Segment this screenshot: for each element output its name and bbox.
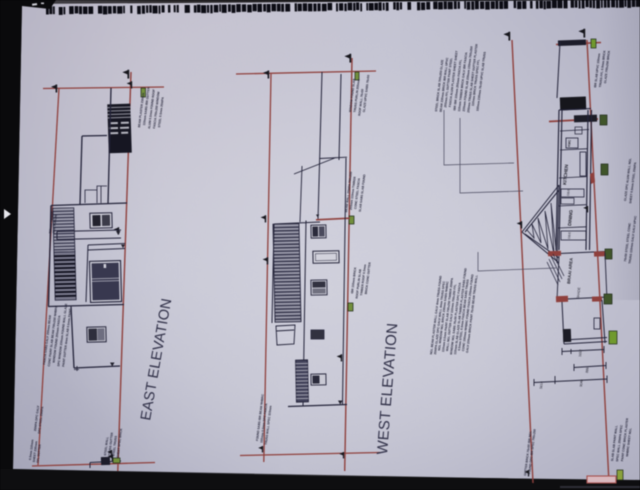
svg-text:1652: 1652 [578,349,583,357]
svg-text:5614: 5614 [539,381,544,389]
svg-text:KMC: KMC [567,139,572,147]
svg-text:9046: 9046 [579,379,584,387]
svg-text:DB/E: DB/E [566,189,571,196]
svg-text:DB/E: DB/E [567,232,572,239]
svg-text:886: 886 [585,367,590,373]
